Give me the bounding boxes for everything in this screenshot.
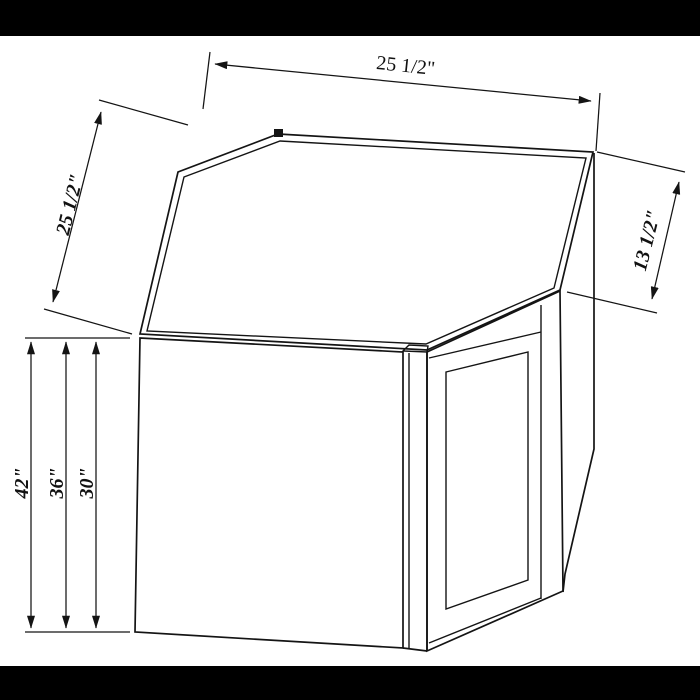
extension-line <box>44 309 132 334</box>
right-side-panel-silhouette <box>563 153 594 592</box>
drawing-canvas: 25 1/2" 25 1/2" 13 1/2" 42" 36" 30" <box>0 0 700 700</box>
bottom-letterbox-bar <box>0 666 700 700</box>
dimension-label-top-width: 25 1/2" <box>375 52 436 80</box>
rim-corner-joint-marker <box>274 129 283 137</box>
dimension-top-width: 25 1/2" <box>203 52 600 151</box>
cabinet-outline <box>135 129 594 651</box>
dimension-label-height-42: 42" <box>11 467 33 499</box>
top-letterbox-bar <box>0 0 700 36</box>
top-rim-inner-edge <box>147 141 586 344</box>
cabinet-technical-drawing: 25 1/2" 25 1/2" 13 1/2" 42" 36" 30" <box>0 0 700 700</box>
dimension-right-depth: 13 1/2" <box>567 152 685 313</box>
dimension-label-height-30: 30" <box>76 467 98 499</box>
diagonal-front-face <box>427 291 563 651</box>
dimension-label-left-width: 25 1/2" <box>52 172 89 238</box>
corner-stile-bottom-edge <box>403 648 427 651</box>
dimension-left-width: 25 1/2" <box>44 100 188 334</box>
extension-line <box>567 292 657 313</box>
dimension-label-height-36: 36" <box>46 467 68 499</box>
extension-line <box>597 152 685 172</box>
left-side-panel <box>135 338 403 648</box>
dimension-heights: 42" 36" 30" <box>11 338 130 632</box>
extension-line <box>99 100 188 125</box>
extension-line <box>596 93 600 151</box>
extension-line <box>203 52 210 109</box>
top-rim-outer-edge <box>140 134 593 350</box>
door-recessed-panel <box>446 352 528 609</box>
